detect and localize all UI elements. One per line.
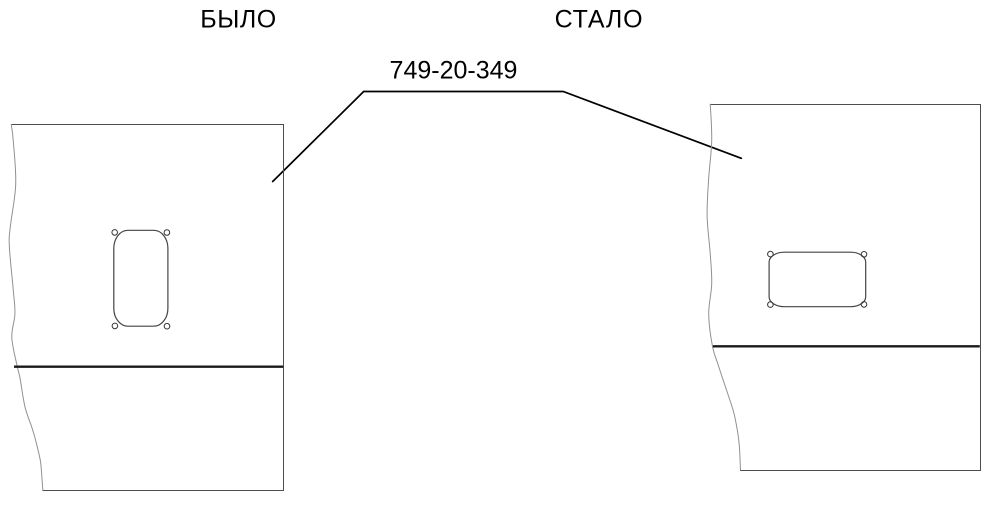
svg-text:СТАЛО: СТАЛО — [555, 6, 644, 34]
svg-text:749-20-349: 749-20-349 — [390, 57, 518, 85]
svg-text:БЫЛО: БЫЛО — [200, 6, 276, 34]
